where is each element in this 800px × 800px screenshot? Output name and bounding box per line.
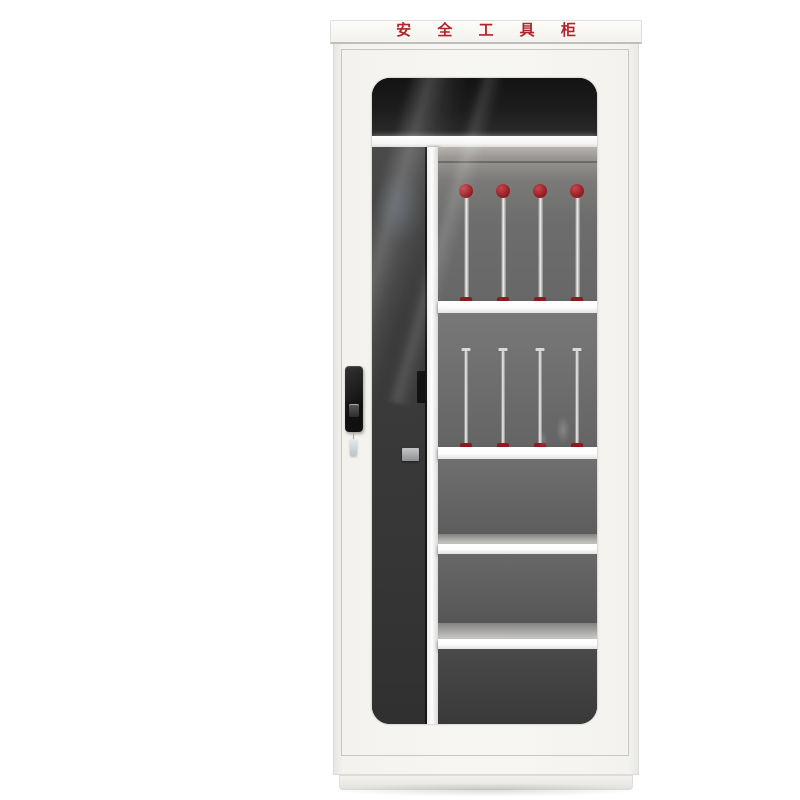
shelf-3 — [438, 447, 597, 459]
insulated-rod-flat-top — [538, 351, 542, 447]
lock-keyhole-plate — [349, 404, 359, 417]
floor-shadow — [330, 783, 642, 797]
insulated-rod-flat-top — [501, 351, 505, 447]
door-latch — [402, 448, 419, 461]
shelf-4-top-surface — [438, 534, 597, 544]
product-photo-stage: 安 全 工 具 柜 — [0, 0, 800, 800]
safety-tool-cabinet: 安 全 工 具 柜 — [333, 20, 639, 790]
lock-key — [350, 439, 357, 456]
insulated-rod-flat-top — [575, 351, 579, 447]
section-empty-2 — [438, 554, 597, 623]
shelf-4 — [438, 544, 597, 554]
glass-door-window — [372, 78, 597, 724]
section-empty-1 — [438, 459, 597, 534]
shelf-top-full-width — [372, 136, 597, 147]
insulated-rod-ball-top — [464, 197, 469, 301]
key-ring-loop — [353, 432, 354, 439]
insulated-rod-flat-top — [464, 351, 468, 447]
back-panel-edge — [438, 161, 597, 163]
interior-top-section — [372, 78, 597, 136]
interior-divider — [425, 147, 438, 724]
interior-left-bay — [372, 147, 425, 724]
cabinet-header-panel: 安 全 工 具 柜 — [330, 20, 642, 44]
insulated-rod-ball-top — [575, 197, 580, 301]
insulated-rod-ball-top — [501, 197, 506, 301]
section-flat-rods — [438, 313, 597, 447]
section-ball-rods — [438, 147, 597, 301]
section-empty-3 — [438, 649, 597, 724]
shelf-5-top-surface — [438, 623, 597, 639]
shelf-5 — [438, 639, 597, 649]
door-lock-handle — [345, 366, 363, 432]
interior-right-bay — [438, 147, 597, 724]
insulated-rod-ball-top — [538, 197, 543, 301]
cabinet-door-face — [333, 42, 639, 775]
cabinet-title: 安 全 工 具 柜 — [331, 21, 641, 41]
shelf-2 — [438, 301, 597, 313]
